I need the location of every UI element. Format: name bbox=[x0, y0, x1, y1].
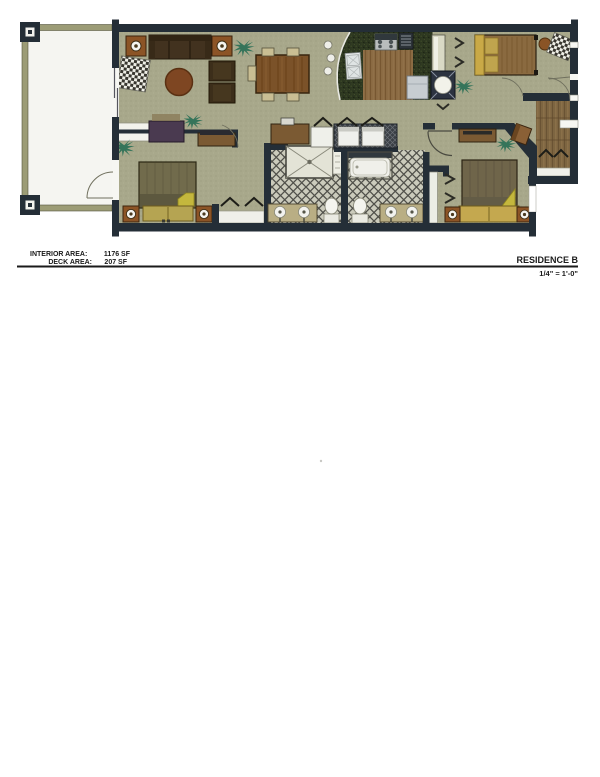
svg-text:1/4" = 1'-0": 1/4" = 1'-0" bbox=[539, 269, 578, 278]
svg-text:1176 SF: 1176 SF bbox=[104, 251, 131, 258]
svg-text:RESIDENCE B: RESIDENCE B bbox=[516, 255, 578, 265]
svg-text:INTERIOR AREA:: INTERIOR AREA: bbox=[30, 251, 87, 258]
svg-text:DECK AREA:: DECK AREA: bbox=[48, 259, 92, 266]
svg-text:207 SF: 207 SF bbox=[104, 259, 127, 266]
